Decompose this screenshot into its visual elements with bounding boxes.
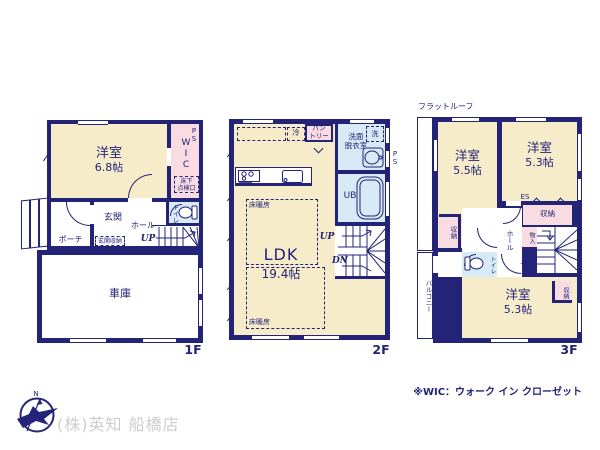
wic-note: ※WIC：ウォーク イン クローゼット xyxy=(410,387,582,399)
compass-logo-icon xyxy=(14,392,60,436)
window xyxy=(516,117,546,122)
window xyxy=(577,179,582,200)
balcony-door-opening xyxy=(433,256,438,273)
window xyxy=(491,338,528,343)
toilet-label: トイレ xyxy=(487,254,496,275)
hall-label: ホール xyxy=(503,224,514,256)
flat-roof-label: フラットルーフ xyxy=(418,102,480,111)
room-size: 5.3帖 xyxy=(502,157,577,170)
company-name: (株)英知 船橋店 xyxy=(57,416,297,435)
door-opening xyxy=(497,230,502,248)
es-label: ES xyxy=(515,193,535,201)
closet-label: 収納 xyxy=(444,221,456,243)
flat-roof xyxy=(417,117,433,251)
dn-label: DN xyxy=(519,257,539,268)
footer: N (株)英知 船橋店 ※WIC：ウォーク イン クローゼット xyxy=(0,380,600,450)
stairs-3f xyxy=(537,227,577,273)
room-size: 5.5帖 xyxy=(438,165,497,178)
floorplan-page: 洋室 6.8帖 WIC PS 床下 点検口 玄関 玄関収納 ホール UP ポーチ… xyxy=(0,0,600,450)
window xyxy=(577,303,582,332)
room-label: 洋室 xyxy=(466,288,570,303)
closet-label: 収納 xyxy=(558,284,569,301)
room-label: 洋室 xyxy=(438,149,497,164)
mono-label: 物入 xyxy=(524,229,535,246)
window xyxy=(452,117,479,122)
room-size: 5.3帖 xyxy=(466,304,570,317)
balcony-label: バルコニー xyxy=(419,262,431,330)
vestibule xyxy=(438,252,462,277)
window xyxy=(577,134,582,171)
compass-n-label: N xyxy=(31,390,41,398)
floor-label-3f: 3F xyxy=(556,343,582,358)
toilet-icon xyxy=(464,255,484,272)
room-label: 洋室 xyxy=(502,141,577,156)
closet-label: 収納 xyxy=(523,210,572,219)
